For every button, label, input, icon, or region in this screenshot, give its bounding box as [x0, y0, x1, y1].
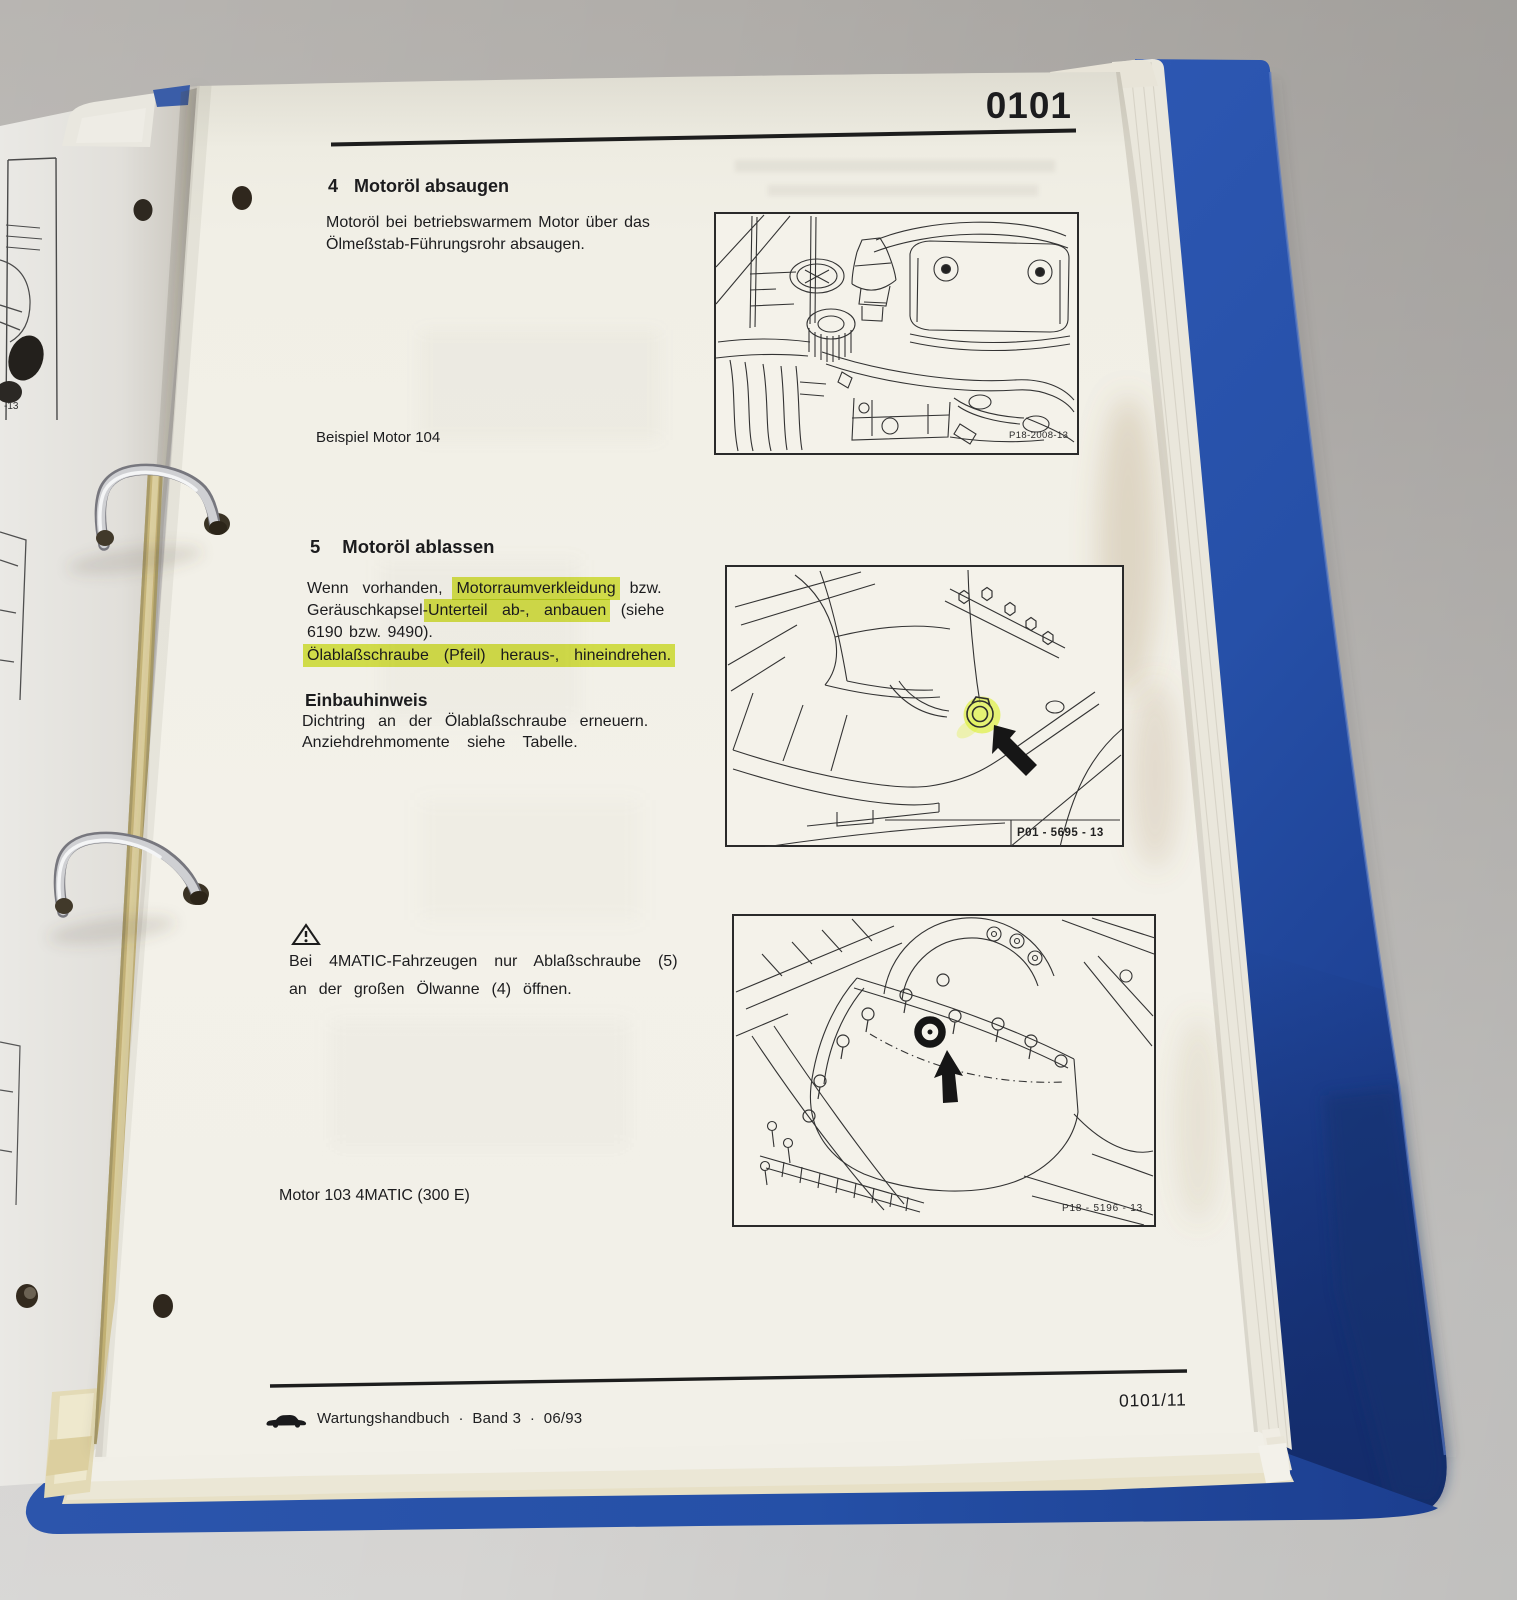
svg-text:P01 - 5695 - 13: P01 - 5695 - 13: [1017, 827, 1104, 839]
svg-text:P18-2008-13: P18-2008-13: [1009, 430, 1068, 441]
svg-text:-13: -13: [4, 401, 19, 412]
svg-text:P18 - 5196 - 13: P18 - 5196 - 13: [1062, 1203, 1143, 1214]
